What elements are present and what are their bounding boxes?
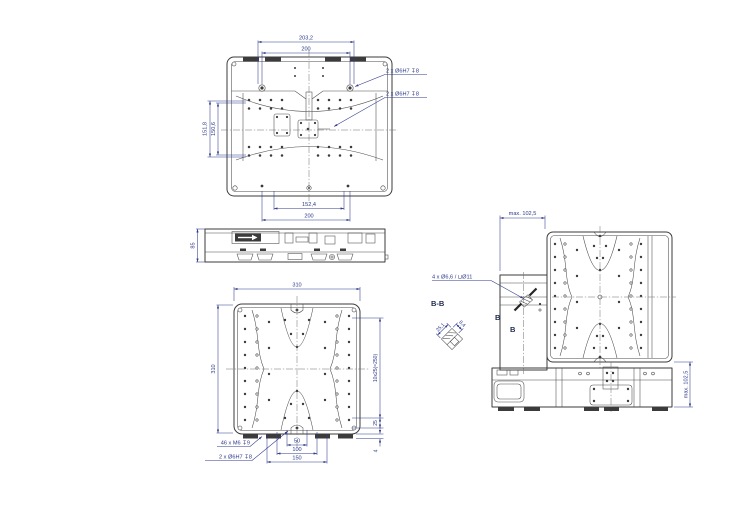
section-marker-b1: B [495,313,501,322]
dim-left-height-outer: 151,8 [203,122,209,136]
cad-drawing-page: 203,2 200 151,8 150,6 152,4 200 2 x Ø6H7… [0,0,750,531]
dim-top-width-pitch: 200 [301,47,310,53]
dim-side-height: 85 [191,242,197,248]
section-marker-b2: B [510,325,516,334]
section-bb: B-B 25,1 8,4 [431,299,472,350]
label-dowel-holes: 2 x Ø6H7 ↧8 [219,454,252,461]
dim-top-width-outer: 203,2 [299,36,313,42]
dim-section-depth: 8,4 [457,320,466,329]
dim-pitch-50: 50 [294,439,300,445]
bottom-view: 310 310 10x25(=250) 25 4 50 100 [205,283,384,464]
top-view: 203,2 200 151,8 150,6 152,4 200 2 x Ø6H7… [203,36,428,222]
label-dowel-center: 2 x Ø6H7 ↧8 [386,91,419,98]
dim-bottom-width: 200 [304,214,313,220]
label-thread-holes: 46 x M6 ↧9 [221,440,250,447]
dim-bottom-view-height: 310 [211,364,217,373]
dim-bottom-view-width: 310 [292,283,301,289]
front-view-dimensions: max. 102,5 4 x Ø6,6 / ⊔Ø11 max. 102,5 [432,211,693,407]
dim-bottom-pitch: 152,4 [302,202,316,208]
label-mount-holes: 4 x Ø6,6 / ⊔Ø11 [432,275,472,281]
section-title: B-B [431,299,445,308]
dim-pitch-150: 150 [292,456,301,462]
dim-hole-pitch: 10x25(=250) [373,354,379,383]
dim-edge: 25 [373,420,379,426]
dim-foot-height: 4 [374,449,380,452]
front-view: B B [432,211,693,412]
dim-section-width: 25,1 [435,322,446,333]
label-dowel-top: 2 x Ø6H7 ↧8 [386,68,419,75]
dim-pitch-100: 100 [292,447,301,453]
side-view-dimensions: 85 [191,229,206,262]
cad-drawing: 203,2 200 151,8 150,6 152,4 200 2 x Ø6H7… [0,0,750,531]
dim-left-height-pitch: 150,6 [211,122,217,136]
side-view: 85 [191,229,389,262]
dim-travel-horizontal: max. 102,5 [509,211,537,217]
dim-travel-vertical: max. 102,5 [684,371,690,399]
